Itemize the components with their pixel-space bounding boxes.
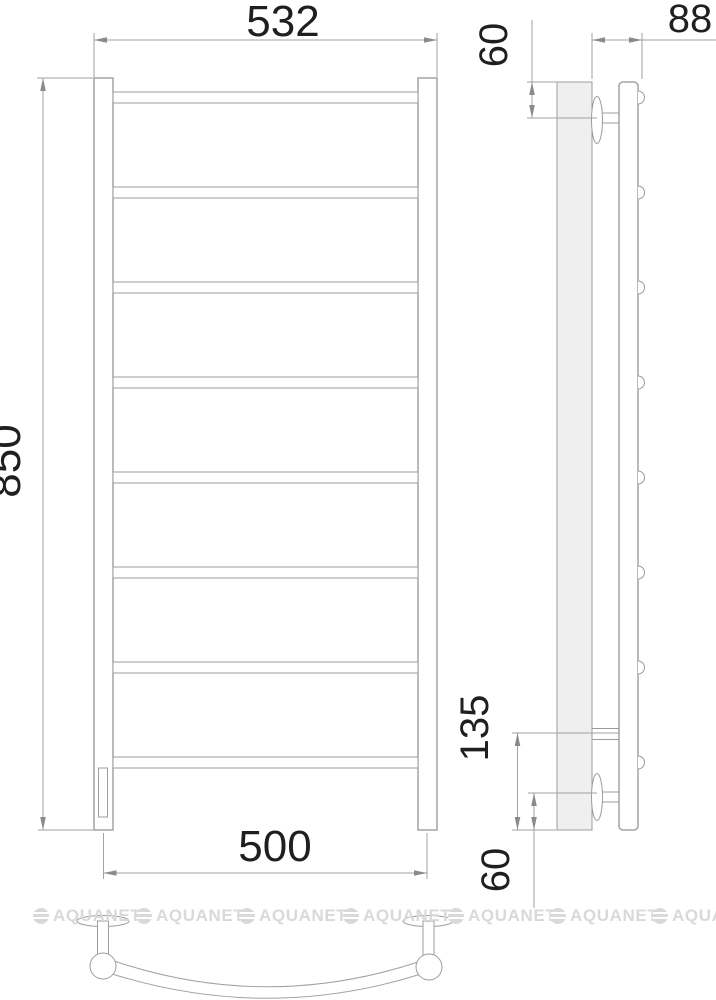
dimension-label-532: 532 — [246, 0, 319, 46]
rung-ends — [638, 91, 645, 769]
rung-end — [638, 566, 645, 579]
rung-end — [638, 91, 644, 104]
rung-end — [638, 376, 645, 389]
right-post — [418, 78, 437, 830]
right-post-top-view — [416, 954, 442, 980]
dimension-label-500: 500 — [238, 822, 311, 871]
rung-end — [638, 281, 645, 294]
collector-tube — [619, 82, 638, 830]
rung — [113, 567, 418, 578]
rungs — [113, 92, 418, 768]
dimension-label-88: 88 — [668, 0, 713, 41]
wall-plate — [557, 82, 592, 830]
dimension-height: 850 — [0, 78, 93, 830]
rung — [113, 282, 418, 293]
dimension-depth: 88 — [592, 0, 716, 79]
rung — [113, 187, 418, 198]
dimension-bottom-width: 500 — [104, 822, 428, 879]
right-stem-top-view — [423, 921, 434, 959]
rung — [113, 377, 418, 388]
front-view — [94, 78, 437, 830]
rung — [113, 662, 418, 673]
plan-view — [77, 916, 453, 999]
dimension-label-135: 135 — [453, 695, 497, 762]
heating-element-marker — [99, 768, 108, 817]
rung — [113, 472, 418, 483]
dimension-label-60-bottom: 60 — [474, 848, 518, 893]
curved-rung-inner-edge — [114, 961, 418, 987]
rung-end — [638, 471, 645, 484]
curved-rung-outer-edge — [109, 973, 421, 998]
drawing-canvas: 532 850 500 88 — [0, 0, 716, 1000]
bottom-bracket-flange — [592, 774, 603, 821]
left-post-top-view — [90, 953, 116, 979]
left-post — [94, 78, 113, 830]
rung-end — [638, 661, 645, 674]
side-view — [557, 82, 645, 830]
rung-end — [638, 186, 645, 199]
dimension-label-850: 850 — [0, 424, 30, 497]
rung — [113, 92, 418, 103]
dimension-top-width: 532 — [94, 0, 437, 77]
rung-end — [638, 756, 645, 769]
top-bracket-flange — [592, 97, 603, 144]
rung — [113, 757, 418, 768]
towel-rail-dimension-drawing: 532 850 500 88 — [0, 0, 716, 1000]
bottom-connection-pipe — [592, 729, 619, 740]
dimension-label-60-top: 60 — [472, 23, 516, 68]
